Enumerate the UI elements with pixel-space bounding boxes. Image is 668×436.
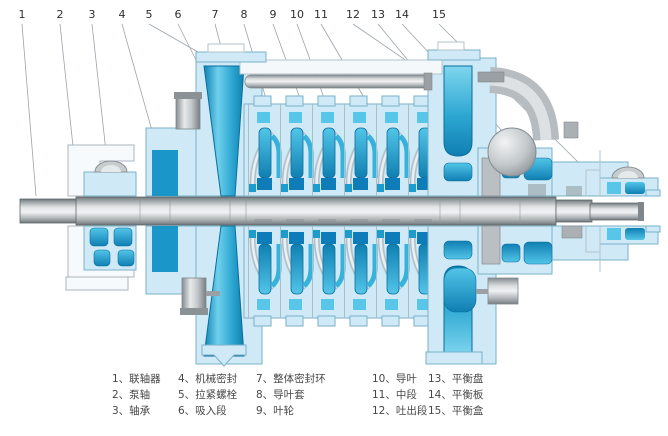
balance-bottom-stud: [562, 226, 582, 238]
legend-item: 13、平衡盘: [428, 371, 483, 387]
legend-item: 6、吸入段: [178, 403, 237, 419]
legend-item: 9、叶轮: [256, 403, 326, 419]
legend-column-2: 4、机械密封 5、拉紧螺栓 6、吸入段: [178, 371, 237, 419]
legend-item: 10、导叶: [372, 371, 427, 387]
parts-legend: 1、联轴器 2、泵轴 3、轴承 4、机械密封 5、拉紧螺栓 6、吸入段 7、整体…: [0, 371, 668, 427]
legend-column-1: 1、联轴器 2、泵轴 3、轴承: [112, 371, 161, 419]
callout-3: 3: [89, 8, 96, 21]
legend-item: 12、吐出段: [372, 403, 427, 419]
suction-flange: [196, 44, 266, 62]
callout-12: 12: [346, 8, 360, 21]
pump-body-lower-half: [68, 226, 660, 364]
callout-11: 11: [314, 8, 328, 21]
callout-1: 1: [19, 8, 26, 21]
left-bearing-blocks: [84, 226, 136, 270]
callout-14: 14: [395, 8, 409, 21]
callout-7: 7: [212, 8, 219, 21]
callout-13: 13: [371, 8, 385, 21]
legend-column-4: 10、导叶 11、中段 12、吐出段: [372, 371, 427, 419]
callout-6: 6: [175, 8, 182, 21]
callout-15: 15: [432, 8, 446, 21]
elbow-ball: [488, 128, 536, 176]
legend-item: 15、平衡盒: [428, 403, 483, 419]
legend-item: 7、整体密封环: [256, 371, 326, 387]
tie-bolt: [245, 73, 432, 90]
upper-casing-outline: [240, 60, 442, 74]
legend-column-5: 13、平衡盘 14、平衡板 15、平衡盒: [428, 371, 483, 419]
legend-item: 1、联轴器: [112, 371, 161, 387]
callout-10: 10: [290, 8, 304, 21]
legend-item: 3、轴承: [112, 403, 161, 419]
legend-column-3: 7、整体密封环 8、导叶套 9、叶轮: [256, 371, 326, 419]
legend-item: 11、中段: [372, 387, 427, 403]
left-bracket-foot: [66, 277, 128, 290]
discharge-flange: [428, 42, 480, 60]
legend-item: 5、拉紧螺栓: [178, 387, 237, 403]
callout-9: 9: [270, 8, 277, 21]
legend-item: 4、机械密封: [178, 371, 237, 387]
legend-item: 8、导叶套: [256, 387, 326, 403]
legend-item: 2、泵轴: [112, 387, 161, 403]
seal-gland-stud-top: [174, 92, 202, 129]
callout-2: 2: [57, 8, 64, 21]
callout-5: 5: [146, 8, 153, 21]
legend-item: 14、平衡板: [428, 387, 483, 403]
callout-numbers: 1 2 3 4 5 6 7 8 9 10 11 12 13 14 15: [19, 8, 447, 21]
pump-diagram-figure: 1 2 3 4 5 6 7 8 9 10 11 12 13 14 15 1、联轴…: [0, 0, 668, 436]
balance-housing-stud: [564, 122, 578, 138]
callout-8: 8: [241, 8, 248, 21]
callout-4: 4: [119, 8, 126, 21]
